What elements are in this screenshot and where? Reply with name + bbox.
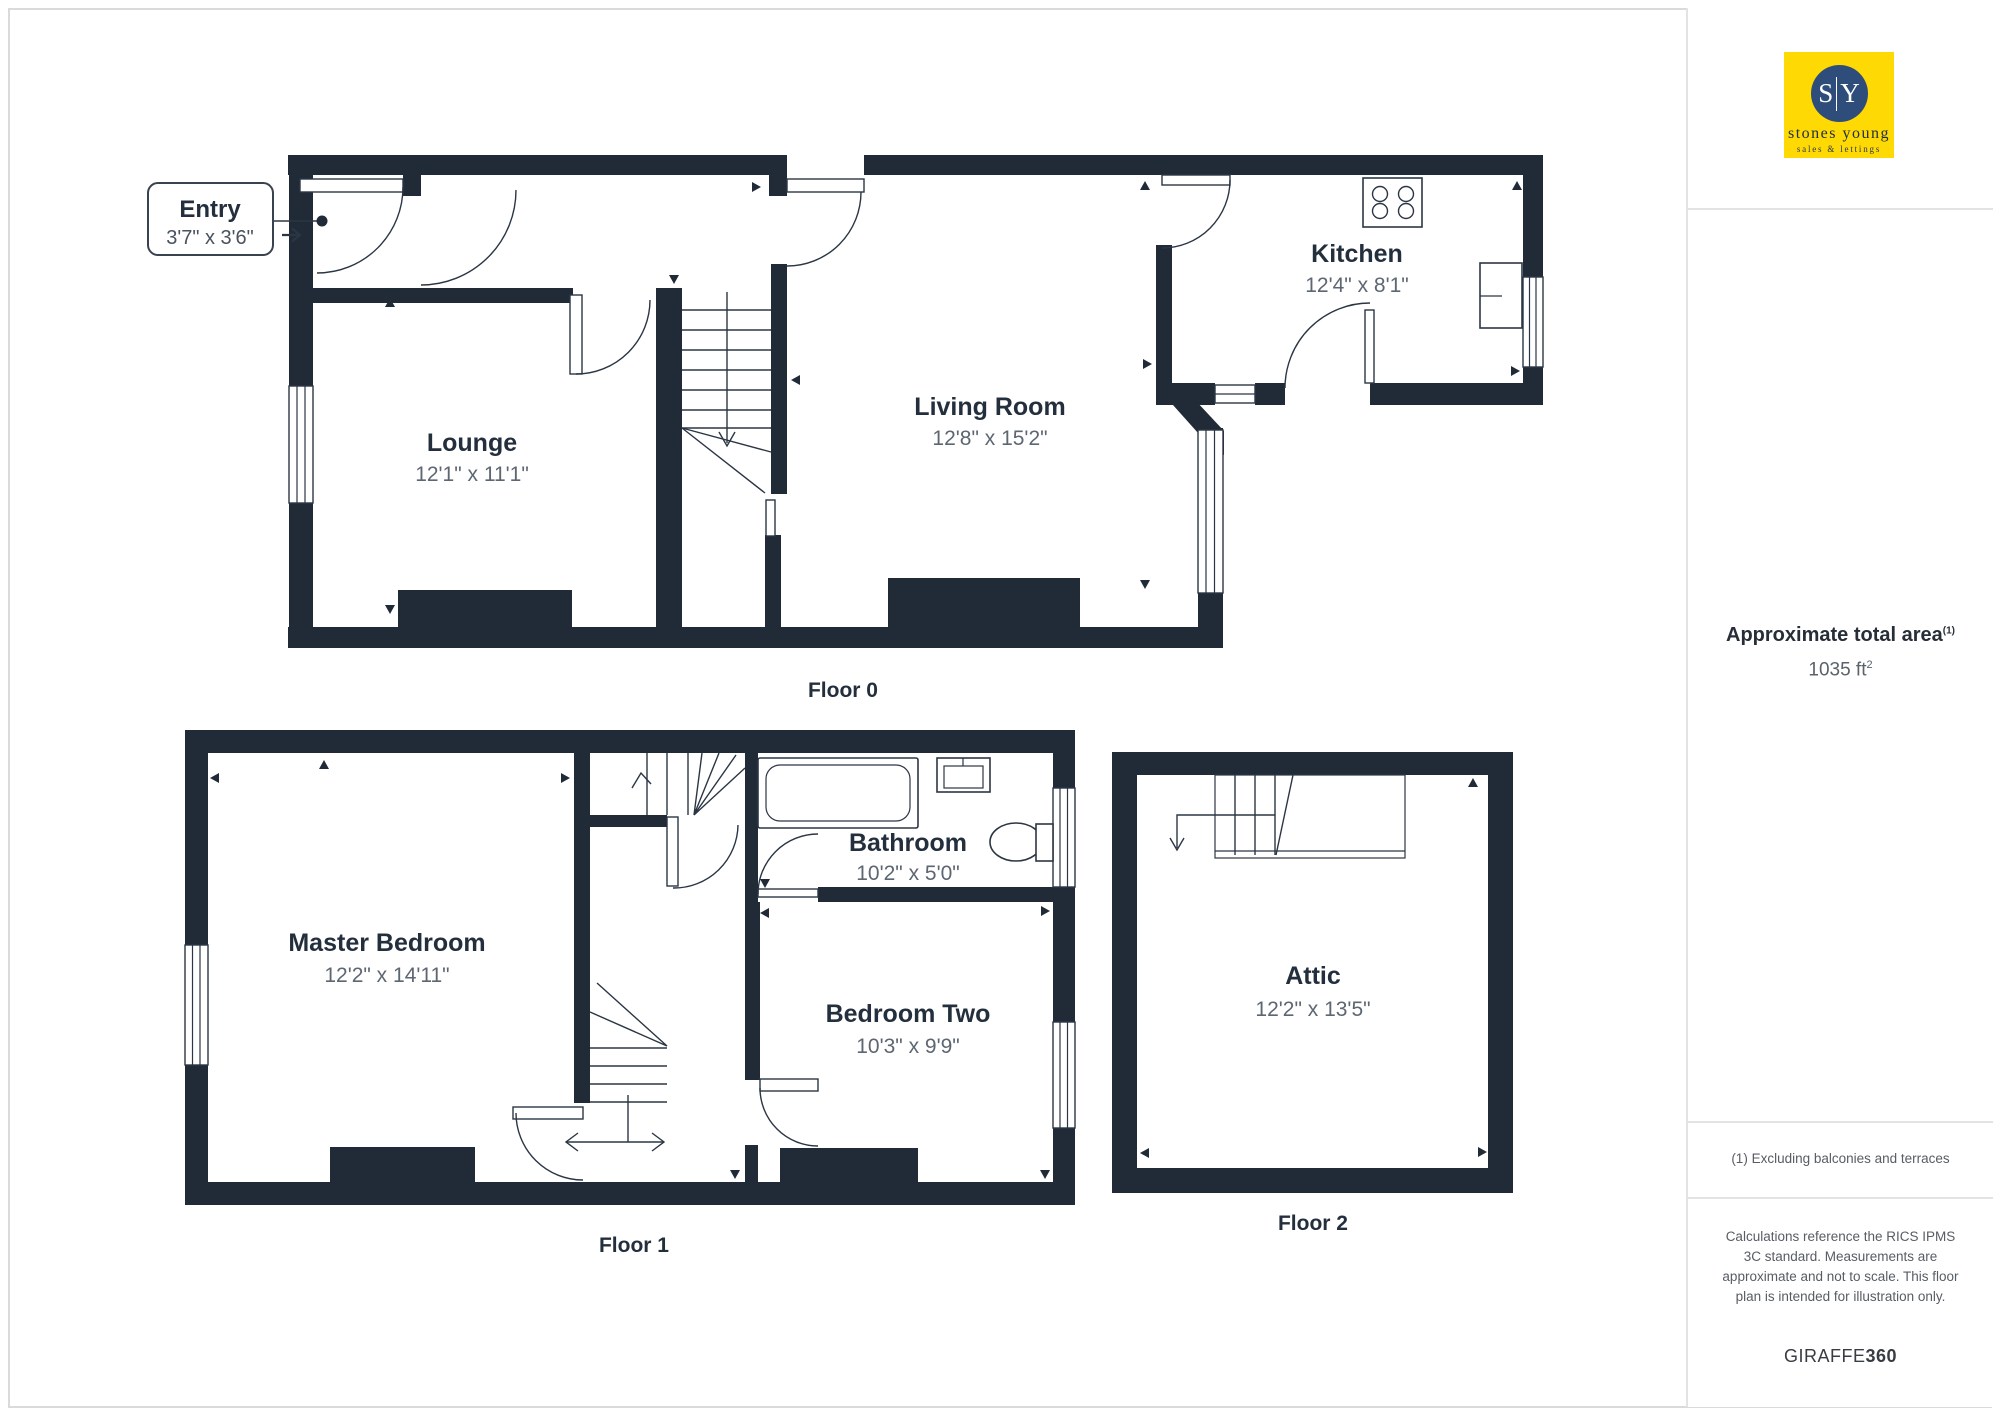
room-dims-lounge: 12'1" x 11'1" xyxy=(415,463,529,486)
room-dims-attic: 12'2" x 13'5" xyxy=(1255,998,1370,1021)
stones-young-logo: SY stones young sales & lettings xyxy=(1784,52,1894,158)
floor1-doors xyxy=(513,817,818,1180)
floor0-stairs-icon xyxy=(682,292,771,493)
room-label-kitchen: Kitchen xyxy=(1311,240,1403,268)
room-dims-living-room: 12'8" x 15'2" xyxy=(932,427,1047,450)
logo-section: SY stones young sales & lettings xyxy=(1688,8,1993,210)
logo-initial-left: S xyxy=(1818,78,1833,109)
total-area-block: Approximate total area(1) 1035 ft2 xyxy=(1688,624,1993,681)
room-dims-kitchen: 12'4" x 8'1" xyxy=(1305,274,1409,297)
floor2-plan: Attic 12'2" x 13'5" Floor 2 xyxy=(1112,752,1513,1235)
giraffe360-brand: GIRAFFE360 xyxy=(1688,1346,1993,1367)
logo-initial-right: Y xyxy=(1840,78,1860,109)
giraffe-360-text: 360 xyxy=(1865,1346,1897,1366)
area-value-text: 1035 ft xyxy=(1808,659,1866,680)
logo-divider-bar xyxy=(1836,77,1837,111)
room-label-bathroom: Bathroom xyxy=(849,829,967,857)
room-dims-bedroom-two: 10'3" x 9'9" xyxy=(856,1035,960,1058)
floor1-walls xyxy=(185,730,1075,1205)
area-footnote-marker: (1) xyxy=(1943,625,1955,636)
room-dims-bathroom: 10'2" x 5'0" xyxy=(856,862,960,885)
disclaimer-text: Calculations reference the RICS IPMS 3C … xyxy=(1720,1227,1961,1307)
room-label-master-bedroom: Master Bedroom xyxy=(288,929,485,957)
floor1-stairs-icon xyxy=(566,753,745,1151)
room-label-entry: Entry xyxy=(179,196,241,223)
footnote-text: (1) Excluding balconies and terraces xyxy=(1688,1151,1993,1166)
entry-location-dot xyxy=(317,216,328,227)
logo-tagline: sales & lettings xyxy=(1784,144,1894,154)
area-heading-text: Approximate total area xyxy=(1726,624,1943,646)
giraffe-text: GIRAFFE xyxy=(1784,1346,1866,1366)
kitchen-sink-icon xyxy=(1480,263,1522,328)
sidebar-divider-upper xyxy=(1688,1121,1993,1123)
bathroom-sink-icon xyxy=(937,758,990,792)
room-label-living-room: Living Room xyxy=(914,393,1065,421)
floor2-caption: Floor 2 xyxy=(1278,1212,1348,1235)
room-label-attic: Attic xyxy=(1285,962,1341,990)
area-value: 1035 ft2 xyxy=(1688,659,1993,681)
area-value-superscript: 2 xyxy=(1866,659,1872,671)
room-label-lounge: Lounge xyxy=(427,429,517,457)
logo-monogram-icon: SY xyxy=(1811,65,1868,122)
floor0-plan: Entry 3'7" x 3'6" Lounge 12'1" x 11'1" L… xyxy=(148,155,1543,702)
floorplan-page: Entry 3'7" x 3'6" Lounge 12'1" x 11'1" L… xyxy=(0,0,2000,1415)
area-heading: Approximate total area(1) xyxy=(1688,624,1993,647)
floor2-labels: Attic 12'2" x 13'5" Floor 2 xyxy=(1255,962,1370,1235)
floor2-stairs-icon xyxy=(1170,775,1405,858)
floor1-caption: Floor 1 xyxy=(599,1234,669,1257)
sidebar-divider-lower xyxy=(1688,1197,1993,1199)
room-dims-entry: 3'7" x 3'6" xyxy=(166,227,253,249)
floor1-plan: Master Bedroom 12'2" x 14'11" Bathroom 1… xyxy=(185,730,1075,1257)
logo-brand-name: stones young xyxy=(1784,126,1894,142)
room-label-bedroom-two: Bedroom Two xyxy=(826,1000,991,1028)
bathtub-icon xyxy=(758,758,918,828)
info-sidebar: SY stones young sales & lettings Approxi… xyxy=(1686,8,1993,1407)
stove-icon xyxy=(1363,178,1422,227)
room-dims-master-bedroom: 12'2" x 14'11" xyxy=(324,964,449,987)
toilet-icon xyxy=(990,823,1053,861)
floor0-caption: Floor 0 xyxy=(808,679,878,702)
